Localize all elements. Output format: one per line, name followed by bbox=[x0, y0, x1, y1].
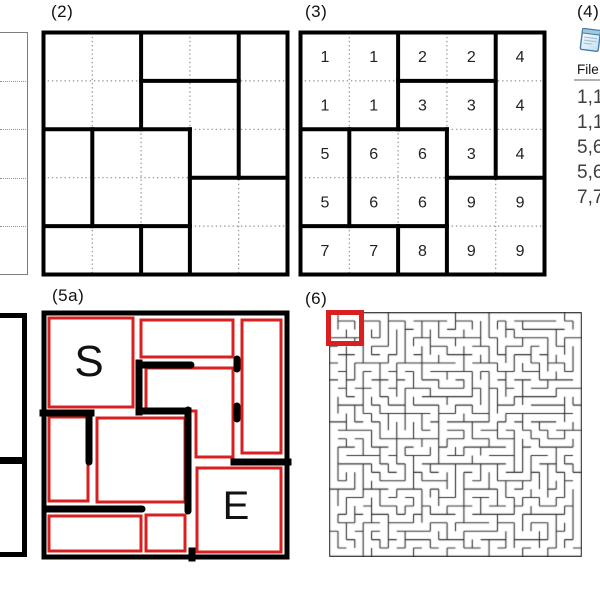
cell-number: 3 bbox=[418, 98, 427, 115]
panel3-label: (3) bbox=[305, 2, 327, 22]
cell-number: 6 bbox=[418, 194, 427, 211]
cell-number: 9 bbox=[466, 243, 475, 260]
end-letter: E bbox=[223, 484, 250, 528]
cell-number: 2 bbox=[466, 49, 475, 66]
cell-number: 6 bbox=[369, 194, 378, 211]
cell-number: 9 bbox=[515, 243, 524, 260]
maze-red-box bbox=[326, 310, 364, 346]
cell-number: 1 bbox=[320, 49, 329, 66]
panel1-top-border bbox=[0, 32, 28, 34]
panel2-label: (2) bbox=[51, 2, 73, 22]
cell-number: 9 bbox=[466, 194, 475, 211]
panel5a-room-puzzle: SE bbox=[44, 313, 287, 557]
csv-lines: 1,1 1,1 5,6 5,6 7,7 bbox=[577, 85, 600, 210]
figure-canvas: (2) (3) 1122411334566345669977899 (4) Fi… bbox=[0, 0, 600, 600]
cell-number: 8 bbox=[418, 243, 427, 260]
cell-number: 3 bbox=[466, 98, 475, 115]
panel1-right-border bbox=[27, 32, 29, 276]
csv-line: 7,7 bbox=[577, 185, 600, 210]
cell-number: 4 bbox=[515, 146, 524, 163]
csv-line: 1,1 bbox=[577, 85, 600, 110]
panel5-wall-bar bbox=[0, 457, 24, 464]
csv-line: 1,1 bbox=[577, 110, 600, 135]
panel1-dotted-line bbox=[0, 178, 26, 179]
cell-number: 7 bbox=[369, 243, 378, 260]
panel2-partition-grid bbox=[41, 30, 291, 278]
cell-number: 1 bbox=[320, 98, 329, 115]
cell-number: 1 bbox=[369, 98, 378, 115]
csv-line: 5,6 bbox=[577, 160, 600, 185]
panel5a-label: (5a) bbox=[52, 286, 84, 306]
notepad-icon bbox=[578, 25, 600, 54]
cell-number: 4 bbox=[515, 98, 524, 115]
cell-number: 5 bbox=[320, 194, 329, 211]
cell-number: 4 bbox=[515, 49, 524, 66]
file-menu-separator bbox=[574, 79, 600, 81]
panel5-right-border bbox=[22, 313, 27, 557]
cell-number: 5 bbox=[320, 146, 329, 163]
panel6-label: (6) bbox=[305, 289, 327, 309]
cell-number: 7 bbox=[320, 243, 329, 260]
cell-number: 9 bbox=[515, 194, 524, 211]
maze-canvas bbox=[329, 312, 582, 557]
panel1-dotted-line bbox=[0, 81, 26, 82]
panel1-dotted-line bbox=[0, 226, 26, 227]
file-menu-label: File bbox=[577, 62, 599, 77]
panel3-numbered-grid: 1122411334566345669977899 bbox=[298, 30, 548, 278]
panel1-bottom-border bbox=[0, 274, 28, 276]
cell-number: 2 bbox=[418, 49, 427, 66]
cell-number: 6 bbox=[418, 146, 427, 163]
panel4-label: (4) bbox=[577, 2, 599, 22]
csv-line: 5,6 bbox=[577, 135, 600, 160]
start-letter: S bbox=[74, 337, 103, 386]
cell-number: 6 bbox=[369, 146, 378, 163]
cell-number: 1 bbox=[369, 49, 378, 66]
cell-number: 3 bbox=[466, 146, 475, 163]
panel5-bottom-border bbox=[0, 552, 27, 557]
panel1-dotted-line bbox=[0, 129, 26, 130]
